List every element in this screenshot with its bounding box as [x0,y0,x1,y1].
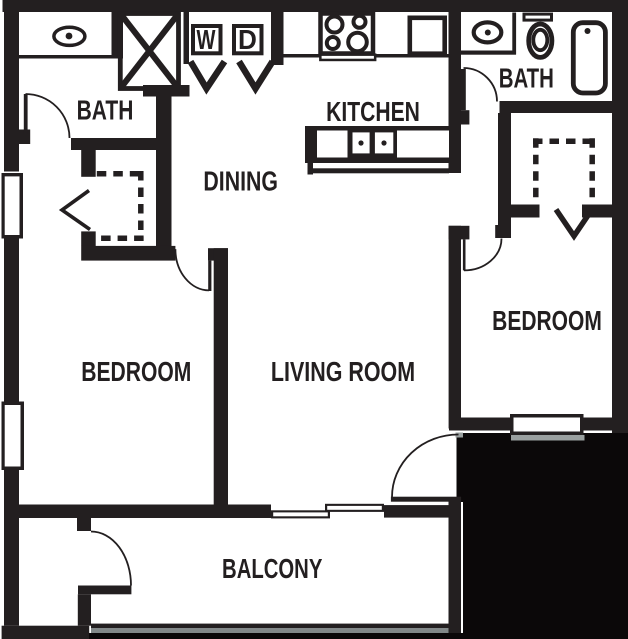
svg-text:BEDROOM: BEDROOM [81,358,191,388]
svg-text:KITCHEN: KITCHEN [326,97,420,127]
svg-text:BATH: BATH [77,96,134,126]
svg-text:DINING: DINING [203,167,278,197]
svg-text:BALCONY: BALCONY [222,554,322,585]
svg-text:BATH: BATH [499,63,554,94]
svg-text:W: W [197,25,216,56]
svg-text:LIVING ROOM: LIVING ROOM [271,358,415,388]
svg-text:D: D [238,24,257,55]
svg-text:BEDROOM: BEDROOM [492,306,602,336]
